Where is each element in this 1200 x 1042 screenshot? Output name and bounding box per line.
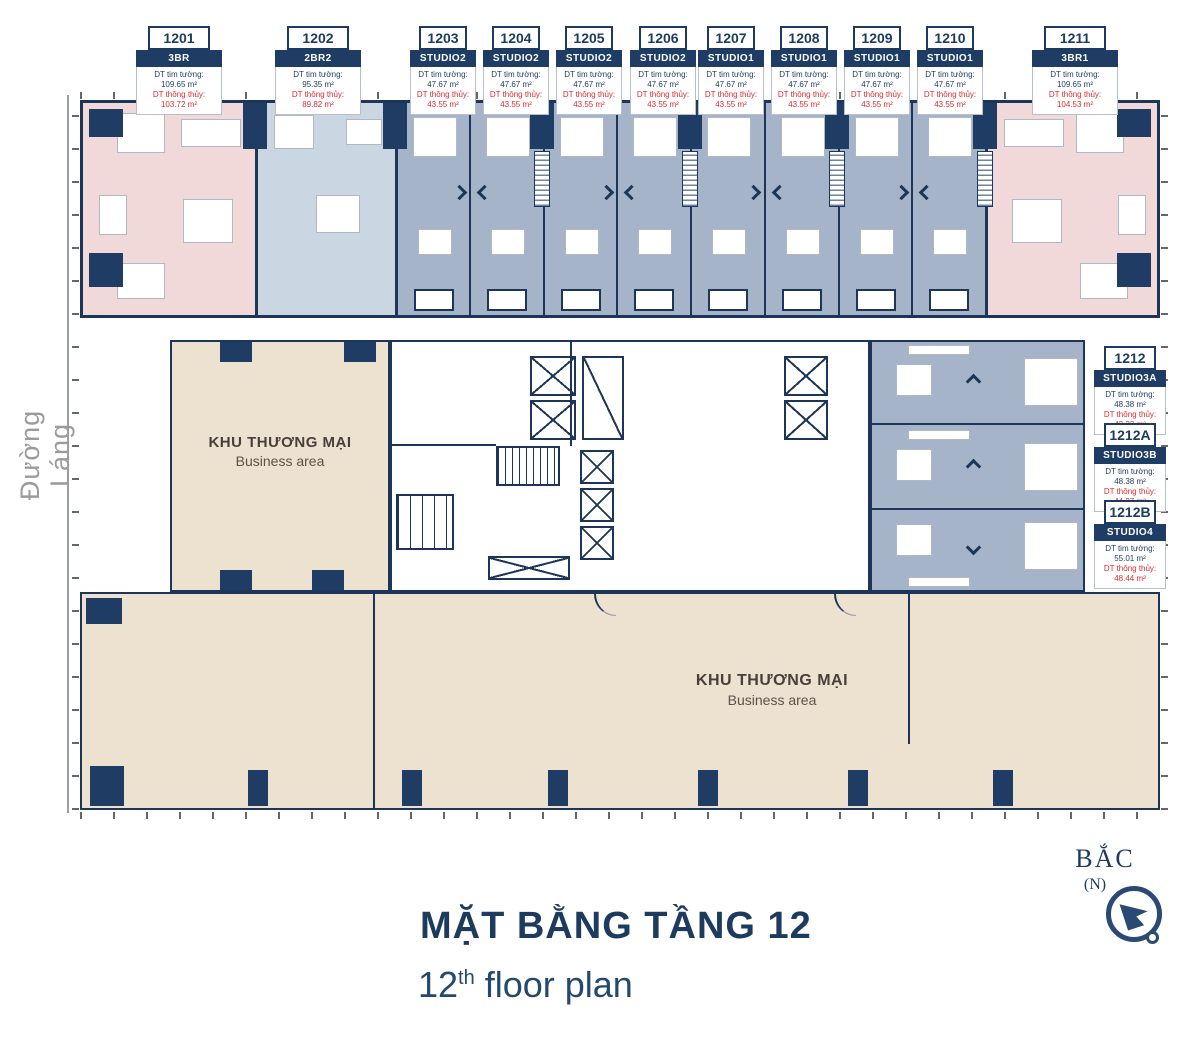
chevron-right-icon [452,185,468,201]
business-area-upper: KHU THƯƠNG MẠI Business area [170,340,390,592]
unit-1212A-area [872,427,1083,510]
bathroom [782,289,822,311]
column-block [243,103,267,149]
page-title-en: 12th floor plan [418,964,633,1006]
unit-card-1205: 1205 STUDIO2 DT tim tường: 47.67 m² DT t… [556,26,622,115]
unit-type-badge: 3BR [136,50,222,67]
furniture [117,113,165,153]
unit-number: 1211 [1044,26,1106,50]
column-block [548,770,568,806]
unit-type-badge: STUDIO4 [1094,524,1166,541]
area-clear-label: DT thông thủy: [772,90,836,100]
unit-number: 1205 [565,26,613,50]
table [491,229,525,255]
column-block [220,570,252,590]
column-block [698,770,718,806]
business-area-label-vi: KHU THƯƠNG MẠI [622,672,922,690]
unit-type-badge: STUDIO2 [483,50,549,67]
unit-number: 1210 [926,26,974,50]
unit-areas: DT tim tường: 47.67 m² DT thông thủy: 43… [698,67,764,115]
title-en-number: 12 [418,964,458,1005]
unit-type-badge: STUDIO1 [698,50,764,67]
area-wall-label: DT tim tường: [137,70,221,80]
furniture [117,263,165,299]
door-swing [594,594,616,616]
unit-type-badge: 3BR1 [1032,50,1118,67]
title-en-rest: floor plan [475,964,633,1005]
area-wall-label: DT tim tường: [845,70,909,80]
elevator [580,450,614,484]
unit-number: 1202 [287,26,349,50]
business-area-label: KHU THƯƠNG MẠI Business area [622,672,922,708]
bathroom [708,289,748,311]
unit-type-badge: STUDIO1 [917,50,983,67]
area-wall-label: DT tim tường: [1095,467,1165,477]
furniture [99,195,127,235]
restrooms [396,494,454,550]
area-clear-value: 103.72 m² [137,100,221,110]
unit-type-badge: STUDIO1 [771,50,837,67]
bathroom [487,289,527,311]
area-wall-value: 47.67 m² [484,80,548,90]
bathroom [856,289,896,311]
table [933,229,967,255]
area-wall-label: DT tim tường: [772,70,836,80]
unit-card-1211: 1211 3BR1 DT tim tường: 109.65 m² DT thô… [1032,26,1118,115]
table [860,229,894,255]
chevron-right-icon [893,185,909,201]
column-block [312,570,344,590]
table [638,229,672,255]
unit-areas: DT tim tường: 47.67 m² DT thông thủy: 43… [556,67,622,115]
unit-card-1212B: 1212B STUDIO4 DT tim tường: 55.01 m² DT … [1094,500,1166,589]
unit-areas: DT tim tường: 47.67 m² DT thông thủy: 43… [844,67,910,115]
furniture [1012,199,1062,243]
unit-type-badge: STUDIO2 [410,50,476,67]
area-wall-value: 47.67 m² [699,80,763,90]
unit-number: 1212B [1104,500,1156,524]
page-title-vi: MẶT BẰNG TẦNG 12 [420,905,812,948]
unit-type-badge: STUDIO3B [1094,447,1166,464]
area-clear-label: DT thông thủy: [699,90,763,100]
area-wall-value: 48.38 m² [1095,400,1165,410]
unit-areas: DT tim tường: 47.67 m² DT thông thủy: 43… [410,67,476,115]
elevator [580,526,614,560]
bed [707,117,751,157]
area-wall-label: DT tim tường: [557,70,621,80]
grid-ticks-bottom [80,812,1160,819]
bed [560,117,604,157]
area-clear-label: DT thông thủy: [845,90,909,100]
door-swing [834,594,856,616]
bed [928,117,972,157]
column-block [1117,109,1151,137]
compass-ring [1146,931,1159,944]
area-clear-label: DT thông thủy: [1095,487,1165,497]
unit-card-1212A: 1212A STUDIO3B DT tim tường: 48.38 m² DT… [1094,423,1166,512]
bed [1024,443,1078,491]
business-area-label: KHU THƯƠNG MẠI Business area [172,434,388,469]
column-block [89,253,123,287]
table [712,229,746,255]
furniture [1004,119,1064,147]
kitchen [908,430,970,440]
area-clear-value: 43.55 m² [699,100,763,110]
core-wall [392,444,496,446]
area-wall-value: 109.65 m² [137,80,221,90]
street-label: Đường Láng [15,375,45,535]
column-block [1117,253,1151,287]
elevator [784,400,828,440]
chevron-left-icon [624,185,640,201]
unit-card-1204: 1204 STUDIO2 DT tim tường: 47.67 m² DT t… [483,26,549,115]
unit-type-badge: STUDIO3A [1094,370,1166,387]
area-wall-label: DT tim tường: [699,70,763,80]
unit-areas: DT tim tường: 109.65 m² DT thông thủy: 1… [1032,67,1118,115]
unit-card-1206: 1206 STUDIO2 DT tim tường: 47.67 m² DT t… [630,26,696,115]
column-block [248,770,268,806]
furniture [183,199,233,243]
service-shaft [534,151,550,207]
escalator-shaft [488,556,570,580]
compass-north-label: BẮC [1050,844,1160,874]
unit-number: 1209 [853,26,901,50]
bathroom [634,289,674,311]
unit-areas: DT tim tường: 55.01 m² DT thông thủy: 48… [1094,541,1166,589]
unit-card-1209: 1209 STUDIO1 DT tim tường: 47.67 m² DT t… [844,26,910,115]
area-clear-value: 43.55 m² [411,100,475,110]
area-clear-label: DT thông thủy: [484,90,548,100]
area-clear-value: 104.53 m² [1033,100,1117,110]
area-wall-label: DT tim tường: [411,70,475,80]
area-clear-value: 43.55 m² [484,100,548,110]
kitchen [908,577,970,587]
area-wall-value: 47.67 m² [918,80,982,90]
column-block [848,770,868,806]
unit-card-1210: 1210 STUDIO1 DT tim tường: 47.67 m² DT t… [917,26,983,115]
unit-card-1207: 1207 STUDIO1 DT tim tường: 47.67 m² DT t… [698,26,764,115]
bed [855,117,899,157]
business-area-label-vi: KHU THƯƠNG MẠI [172,434,388,451]
column-block [383,103,407,149]
table [896,364,932,396]
area-clear-label: DT thông thủy: [137,90,221,100]
bed [1024,358,1078,406]
area-wall-value: 47.67 m² [631,80,695,90]
area-clear-label: DT thông thủy: [276,90,360,100]
chevron-left-icon [919,185,935,201]
floor-plan: KHU THƯƠNG MẠI Business area [80,100,1160,810]
business-area-label-en: Business area [172,453,388,469]
grid-ticks-left [72,100,79,810]
column-block [402,770,422,806]
bathroom [561,289,601,311]
area-wall-value: 55.01 m² [1095,554,1165,564]
area-wall-label: DT tim tường: [1033,70,1117,80]
area-clear-label: DT thông thủy: [1033,90,1117,100]
unit-type-badge: 2BR2 [275,50,361,67]
table [896,524,932,556]
unit-1202-area [255,103,395,315]
service-shaft [682,151,698,207]
partition-wall [373,594,375,808]
furniture [1118,195,1146,235]
area-clear-value: 43.55 m² [631,100,695,110]
area-wall-label: DT tim tường: [918,70,982,80]
area-clear-value: 43.55 m² [845,100,909,110]
table [565,229,599,255]
apartment-band [80,100,1160,318]
unit-type-badge: STUDIO2 [630,50,696,67]
area-wall-label: DT tim tường: [1095,544,1165,554]
area-wall-label: DT tim tường: [631,70,695,80]
area-clear-label: DT thông thủy: [631,90,695,100]
area-clear-value: 48.44 m² [1095,574,1165,584]
chevron-left-icon [771,185,787,201]
unit-number: 1206 [639,26,687,50]
area-clear-label: DT thông thủy: [918,90,982,100]
unit-card-1212: 1212 STUDIO3A DT tim tường: 48.38 m² DT … [1094,346,1166,435]
staircase [496,446,560,486]
unit-number: 1201 [148,26,210,50]
area-wall-value: 47.67 m² [411,80,475,90]
bed [1024,522,1078,570]
chevron-right-icon [598,185,614,201]
chevron-up-icon [966,459,982,475]
unit-areas: DT tim tường: 47.67 m² DT thông thủy: 43… [630,67,696,115]
area-clear-value: 43.55 m² [557,100,621,110]
unit-card-1201: 1201 3BR DT tim tường: 109.65 m² DT thôn… [136,26,222,115]
unit-areas: DT tim tường: 95.35 m² DT thông thủy: 89… [275,67,361,115]
unit-1212-stack [870,340,1085,592]
area-clear-label: DT thông thủy: [1095,410,1165,420]
chevron-left-icon [476,185,492,201]
business-area-label-en: Business area [622,692,922,708]
area-clear-value: 89.82 m² [276,100,360,110]
chevron-down-icon [966,540,982,556]
furniture [181,119,241,147]
service-core [390,340,870,592]
elevator [530,400,576,440]
area-wall-value: 95.35 m² [276,80,360,90]
unit-number: 1203 [419,26,467,50]
area-wall-value: 47.67 m² [845,80,909,90]
bathroom [414,289,454,311]
unit-number: 1207 [707,26,755,50]
area-wall-value: 48.38 m² [1095,477,1165,487]
area-wall-label: DT tim tường: [276,70,360,80]
column-block [220,342,252,362]
bathroom [929,289,969,311]
unit-areas: DT tim tường: 109.65 m² DT thông thủy: 1… [136,67,222,115]
area-wall-value: 109.65 m² [1033,80,1117,90]
chevron-up-icon [966,374,982,390]
area-clear-label: DT thông thủy: [557,90,621,100]
area-clear-label: DT thông thủy: [411,90,475,100]
column-block [993,770,1013,806]
area-wall-value: 47.67 m² [772,80,836,90]
column-block [86,598,122,624]
furniture [274,115,314,149]
unit-card-1208: 1208 STUDIO1 DT tim tường: 47.67 m² DT t… [771,26,837,115]
partition-wall [908,594,910,744]
unit-1212B-area [872,512,1083,590]
furniture [346,119,382,145]
bed [486,117,530,157]
area-wall-label: DT tim tường: [1095,390,1165,400]
title-en-ordinal: th [458,967,475,989]
unit-1212-area [872,342,1083,425]
floor-plan-page: Đường Láng 1201 3BR DT tim tường: 109.65… [0,0,1200,1042]
bed [413,117,457,157]
service-shaft [829,151,845,207]
business-area-lower: KHU THƯƠNG MẠI Business area [80,592,1160,810]
elevator [530,356,576,396]
elevator [784,356,828,396]
area-clear-value: 43.55 m² [918,100,982,110]
area-clear-value: 43.55 m² [772,100,836,110]
column-block [89,109,123,137]
furniture [316,195,360,233]
area-wall-value: 47.67 m² [557,80,621,90]
column-block [90,766,124,806]
unit-number: 1212A [1104,423,1156,447]
bed [633,117,677,157]
unit-areas: DT tim tường: 47.67 m² DT thông thủy: 43… [917,67,983,115]
bed [781,117,825,157]
chevron-right-icon [746,185,762,201]
unit-areas: DT tim tường: 47.67 m² DT thông thủy: 43… [483,67,549,115]
area-clear-label: DT thông thủy: [1095,564,1165,574]
unit-number: 1204 [492,26,540,50]
kitchen [908,345,970,355]
area-wall-label: DT tim tường: [484,70,548,80]
unit-areas: DT tim tường: 47.67 m² DT thông thủy: 43… [771,67,837,115]
elevator-shaft [582,356,624,440]
unit-number: 1212 [1104,346,1156,370]
table [418,229,452,255]
service-shaft [977,151,993,207]
unit-card-1203: 1203 STUDIO2 DT tim tường: 47.67 m² DT t… [410,26,476,115]
table [896,449,932,481]
table [786,229,820,255]
unit-number: 1208 [780,26,828,50]
elevator [580,488,614,522]
unit-card-1202: 1202 2BR2 DT tim tường: 95.35 m² DT thôn… [275,26,361,115]
column-block [344,342,376,362]
unit-type-badge: STUDIO1 [844,50,910,67]
unit-type-badge: STUDIO2 [556,50,622,67]
